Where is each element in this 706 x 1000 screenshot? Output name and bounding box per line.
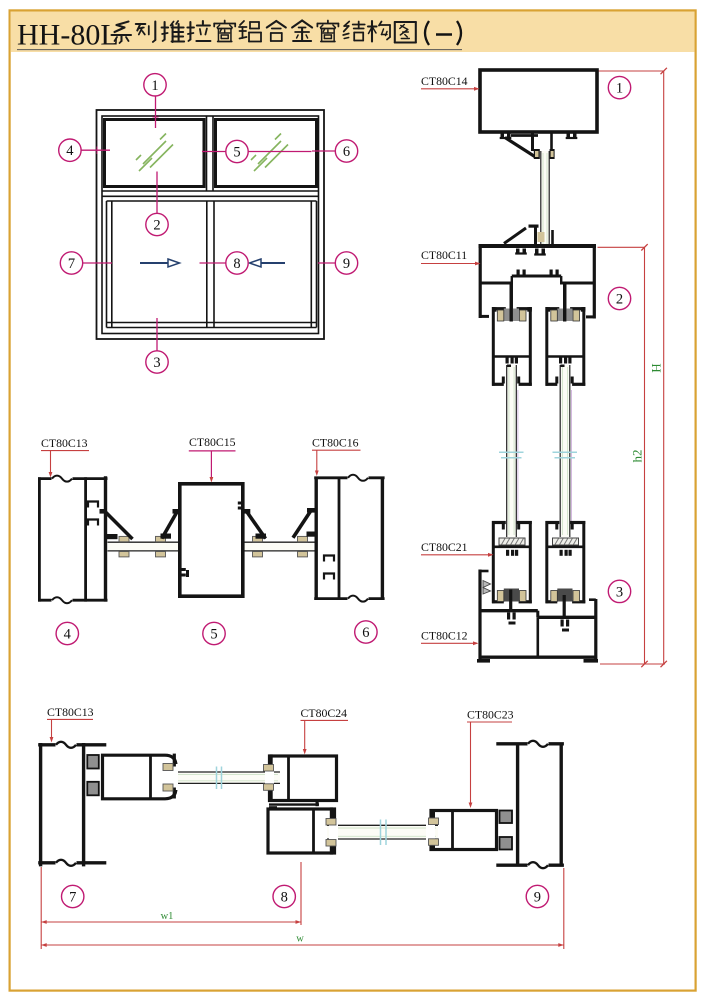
svg-text:8: 8 [233, 256, 240, 272]
svg-text:CT80C11: CT80C11 [421, 248, 467, 262]
svg-text:4: 4 [66, 143, 74, 159]
svg-text:CT80C12: CT80C12 [421, 629, 468, 643]
svg-text:8: 8 [281, 890, 288, 906]
svg-text:w1: w1 [161, 911, 174, 922]
svg-text:6: 6 [362, 625, 369, 641]
svg-text:2: 2 [616, 292, 623, 308]
svg-text:9: 9 [534, 890, 541, 906]
svg-text:2: 2 [153, 218, 160, 234]
svg-text:w: w [296, 934, 304, 945]
svg-text:CT80C14: CT80C14 [421, 74, 468, 88]
svg-text:3: 3 [616, 584, 623, 600]
svg-text:CT80C23: CT80C23 [467, 708, 514, 722]
svg-text:7: 7 [68, 256, 75, 272]
svg-text:CT80C21: CT80C21 [421, 540, 468, 554]
svg-text:CT80C24: CT80C24 [301, 706, 348, 720]
svg-text:1: 1 [616, 81, 623, 97]
svg-text:CT80C16: CT80C16 [312, 436, 359, 450]
svg-text:6: 6 [343, 144, 350, 160]
svg-text:H: H [649, 363, 664, 372]
svg-text:CT80C15: CT80C15 [189, 435, 236, 449]
svg-text:4: 4 [64, 627, 72, 643]
svg-text:7: 7 [69, 890, 76, 906]
svg-text:h2: h2 [630, 450, 645, 463]
svg-text:CT80C13: CT80C13 [47, 705, 94, 719]
svg-text:5: 5 [233, 145, 240, 161]
svg-text:5: 5 [210, 627, 217, 643]
svg-text:CT80C13: CT80C13 [41, 436, 88, 450]
svg-text:1: 1 [151, 78, 158, 94]
svg-text:HH-80L: HH-80L [17, 19, 119, 52]
svg-text:9: 9 [343, 256, 350, 272]
svg-text:3: 3 [153, 355, 160, 371]
